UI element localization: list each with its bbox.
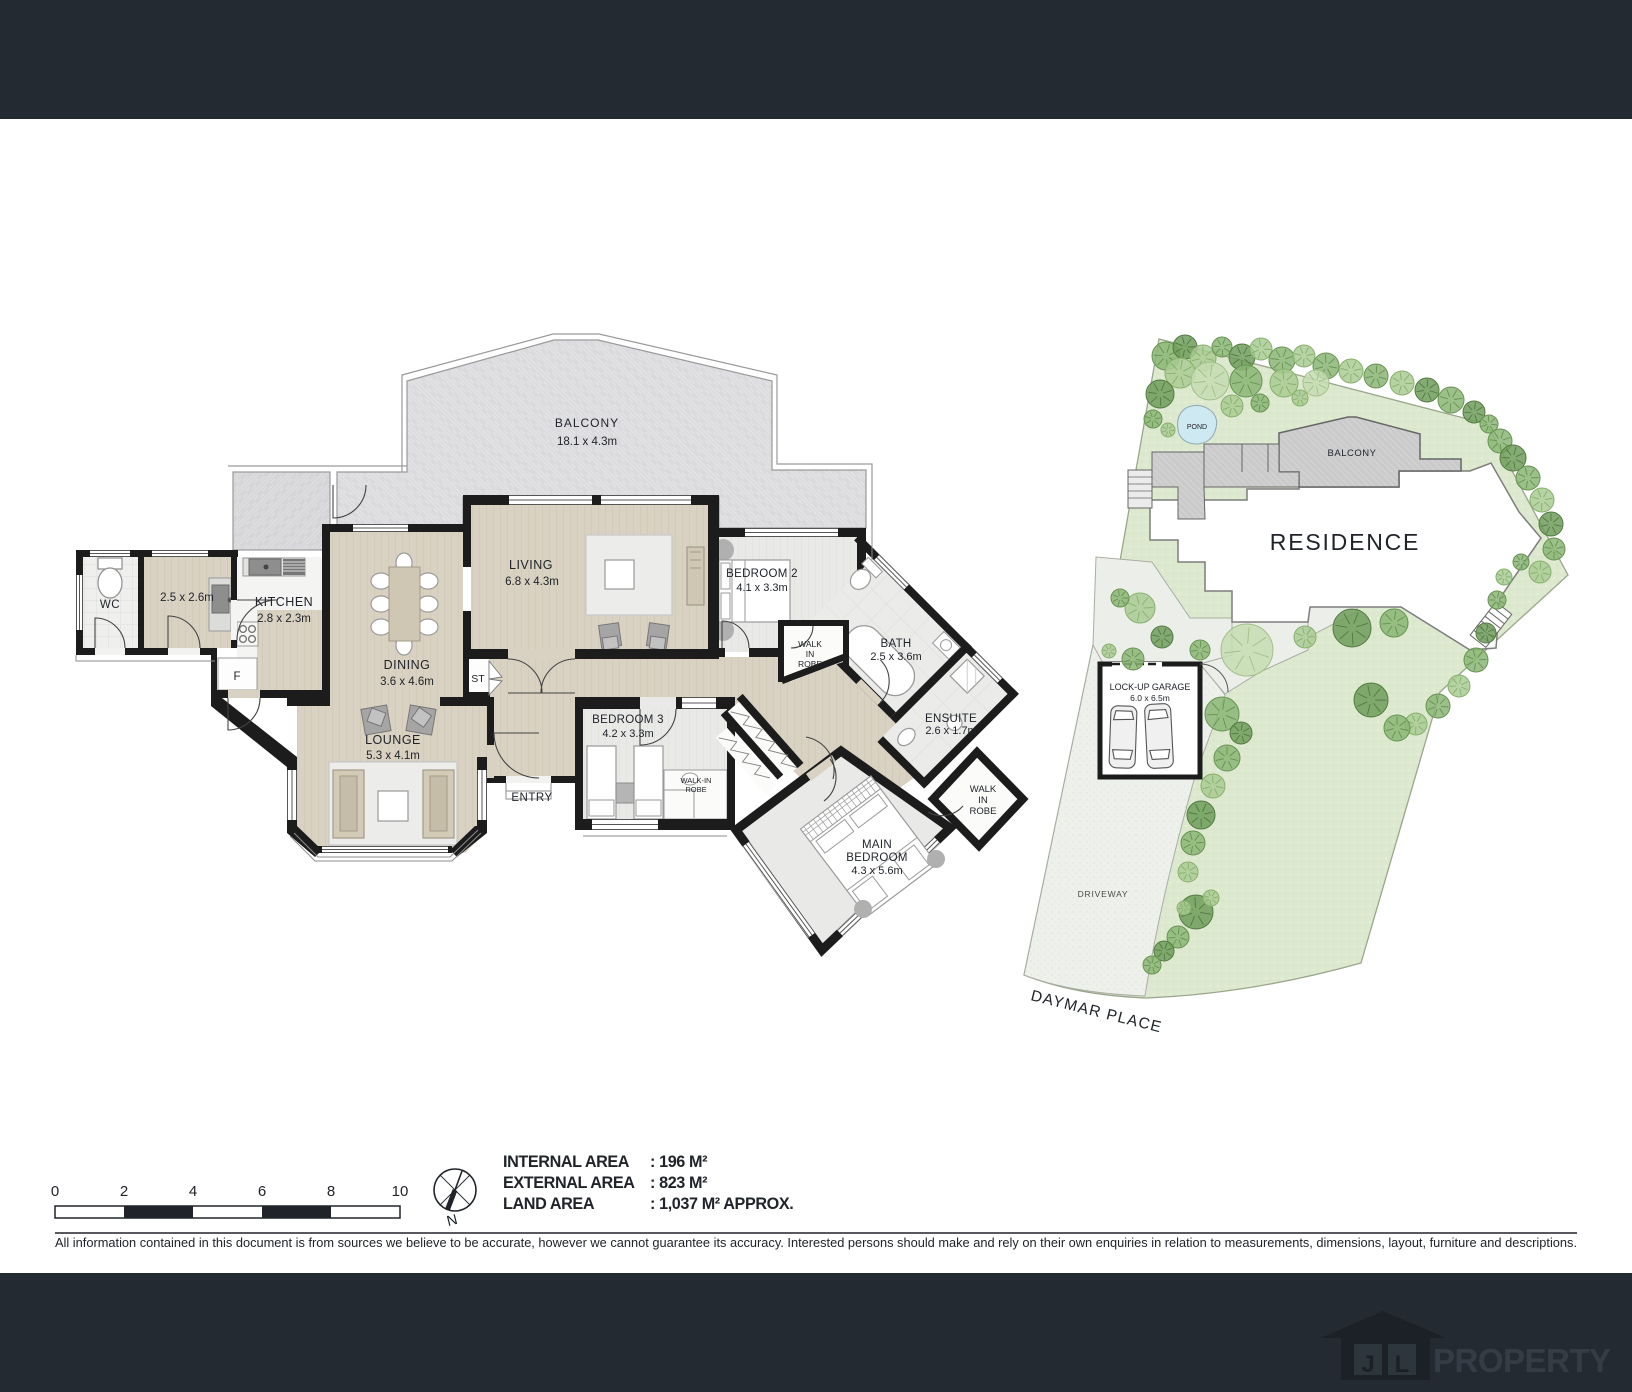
svg-text:2.5 x 2.6m: 2.5 x 2.6m xyxy=(160,592,214,604)
svg-text:BEDROOM 2: BEDROOM 2 xyxy=(726,568,798,580)
svg-text:: 196 M²: : 196 M² xyxy=(650,1153,708,1171)
svg-text:3.6 x 4.6m: 3.6 x 4.6m xyxy=(380,676,434,688)
svg-text:PROPERTY: PROPERTY xyxy=(1433,1342,1611,1379)
svg-text:EXTERNAL AREA: EXTERNAL AREA xyxy=(503,1174,635,1192)
svg-text:IN: IN xyxy=(806,649,815,659)
svg-text:MAIN: MAIN xyxy=(862,839,892,851)
svg-text:DRIVEWAY: DRIVEWAY xyxy=(1078,889,1129,899)
svg-text:INTERNAL AREA: INTERNAL AREA xyxy=(503,1153,630,1171)
svg-text:KITCHEN: KITCHEN xyxy=(255,595,313,609)
svg-text:ENTRY: ENTRY xyxy=(511,792,552,804)
svg-text:BATH: BATH xyxy=(880,638,911,650)
svg-text:ROBE: ROBE xyxy=(685,785,706,794)
svg-text:BEDROOM: BEDROOM xyxy=(846,852,908,864)
svg-text:4: 4 xyxy=(189,1183,197,1200)
svg-text:All information contained in t: All information contained in this docume… xyxy=(55,1235,1577,1250)
svg-text:LOCK-UP GARAGE: LOCK-UP GARAGE xyxy=(1110,682,1191,692)
svg-text:LOUNGE: LOUNGE xyxy=(365,733,421,747)
svg-text:8: 8 xyxy=(327,1183,335,1200)
svg-text:10: 10 xyxy=(392,1183,409,1200)
svg-text:LIVING: LIVING xyxy=(509,558,553,572)
svg-text:WC: WC xyxy=(100,599,120,611)
svg-text:2: 2 xyxy=(120,1183,128,1200)
svg-text:F: F xyxy=(233,671,240,683)
svg-text:2.5 x 3.6m: 2.5 x 3.6m xyxy=(870,651,921,663)
svg-text:4.1 x 3.3m: 4.1 x 3.3m xyxy=(736,582,787,594)
svg-text:L: L xyxy=(1395,1351,1410,1378)
svg-text:WALK: WALK xyxy=(798,639,822,649)
svg-text:J: J xyxy=(1361,1351,1374,1378)
svg-text:2.6 x 1.7m: 2.6 x 1.7m xyxy=(925,725,976,737)
svg-text:POND: POND xyxy=(1187,424,1207,431)
svg-text:6: 6 xyxy=(258,1183,266,1200)
svg-text:5.3 x 4.1m: 5.3 x 4.1m xyxy=(366,750,420,762)
svg-text:18.1 x 4.3m: 18.1 x 4.3m xyxy=(557,436,617,448)
svg-text:4.3 x 5.6m: 4.3 x 5.6m xyxy=(851,865,902,877)
svg-text:BEDROOM 3: BEDROOM 3 xyxy=(592,714,664,726)
svg-text:WALK: WALK xyxy=(970,784,997,795)
svg-text:ROBE: ROBE xyxy=(970,806,997,817)
svg-text:6.0 x 6.5m: 6.0 x 6.5m xyxy=(1130,693,1170,703)
svg-text:: 823 M²: : 823 M² xyxy=(650,1174,708,1192)
svg-text:4.2 x 3.3m: 4.2 x 3.3m xyxy=(602,728,653,740)
svg-text:ENSUITE: ENSUITE xyxy=(925,713,977,725)
svg-text:LAND AREA: LAND AREA xyxy=(503,1195,595,1213)
svg-text:2.8 x 2.3m: 2.8 x 2.3m xyxy=(257,613,311,625)
svg-text:BALCONY: BALCONY xyxy=(1328,448,1377,459)
svg-text:IN: IN xyxy=(978,795,988,806)
svg-text:0: 0 xyxy=(51,1183,59,1200)
svg-text:ROBE: ROBE xyxy=(798,659,822,669)
svg-text:WALK-IN: WALK-IN xyxy=(681,776,712,785)
svg-text:BALCONY: BALCONY xyxy=(555,416,619,430)
svg-text:ST: ST xyxy=(471,673,485,685)
svg-text:6.8 x 4.3m: 6.8 x 4.3m xyxy=(505,576,559,588)
svg-text:: 1,037 M² APPROX.: : 1,037 M² APPROX. xyxy=(650,1195,793,1213)
svg-text:RESIDENCE: RESIDENCE xyxy=(1270,529,1420,555)
svg-text:DINING: DINING xyxy=(384,658,431,672)
